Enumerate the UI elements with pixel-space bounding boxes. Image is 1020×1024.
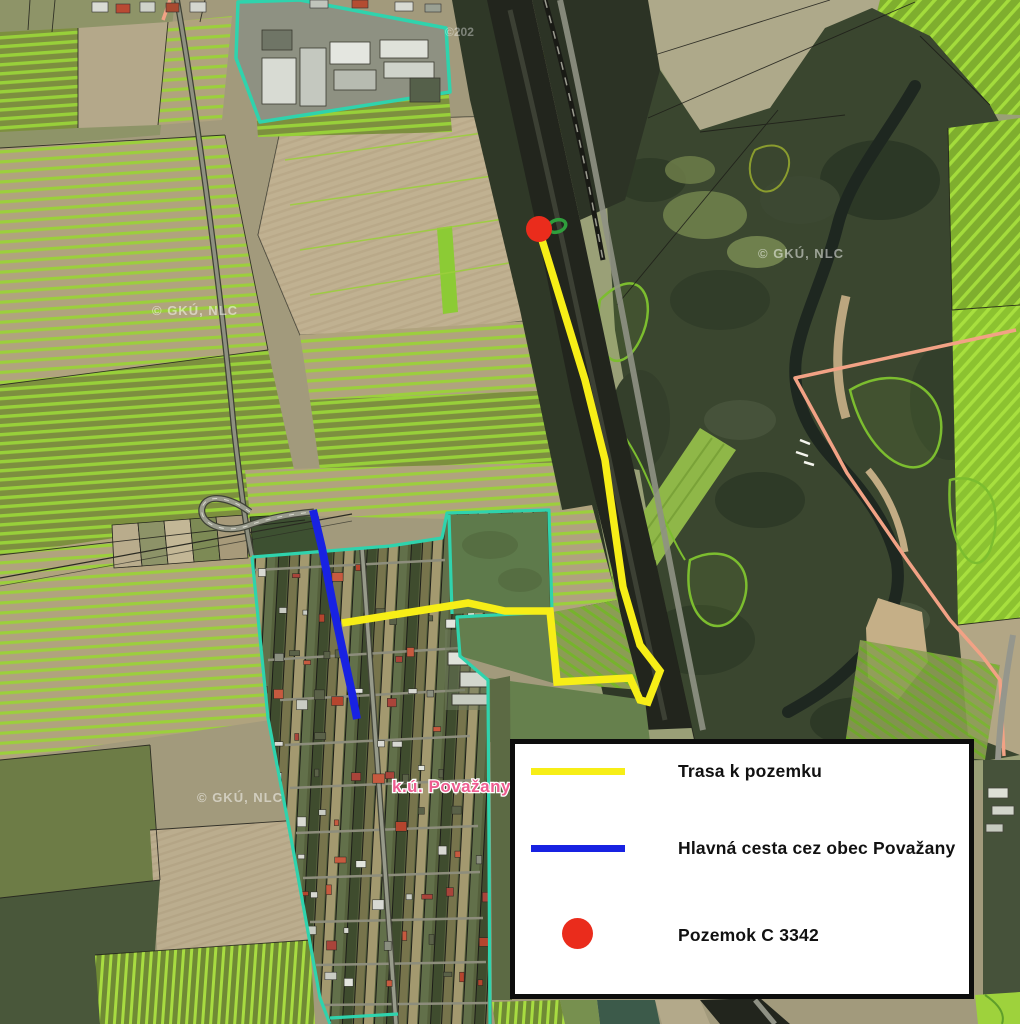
watermark: © GKÚ, NLC (758, 246, 844, 261)
watermark: © GKÚ, NLC (197, 790, 283, 805)
legend-sample-parcel-dot (562, 918, 593, 949)
legend-label-main-road: Hlavná cesta cez obec Považany (678, 838, 955, 859)
legend-sample-main-road (531, 845, 625, 852)
legend-label-route: Trasa k pozemku (678, 761, 822, 782)
watermark: ©202 (445, 25, 474, 39)
parcel-marker-dot (526, 216, 552, 242)
region-label: k.ú. Považany (392, 777, 511, 796)
legend-sample-route (531, 768, 625, 775)
watermark: © GKÚ, NLC (152, 303, 238, 318)
legend-box: Trasa k pozemku Hlavná cesta cez obec Po… (510, 739, 974, 999)
map-screenshot: © GKÚ, NLC © GKÚ, NLC © GKÚ, NLC ©202 k.… (0, 0, 1020, 1024)
legend-label-parcel: Pozemok C 3342 (678, 925, 819, 946)
